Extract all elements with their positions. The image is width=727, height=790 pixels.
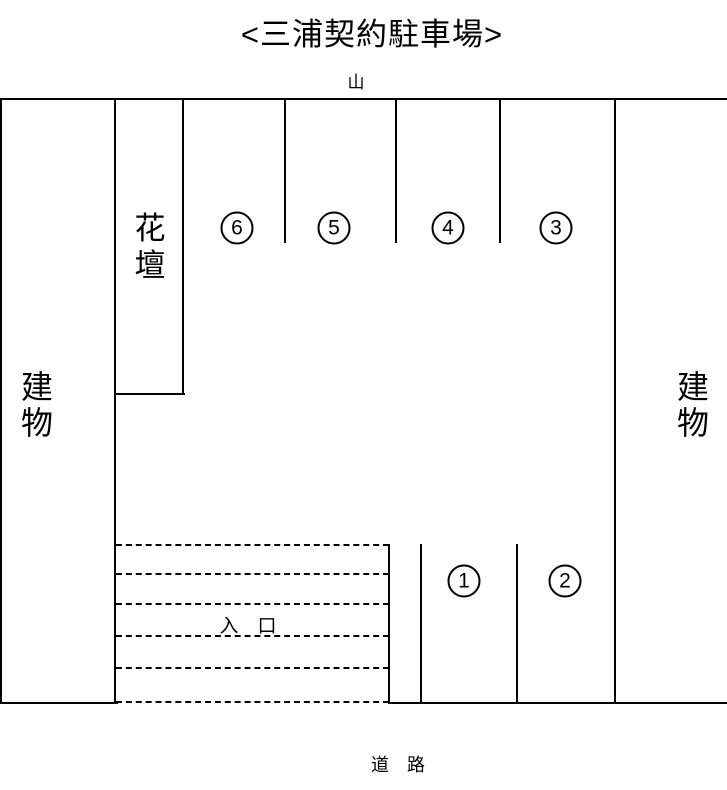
left-building-wall-line [0, 98, 2, 704]
divider-spot1-spot2 [516, 544, 518, 704]
spot-3-number: 3 [550, 218, 562, 239]
road-label: 道 路 [371, 751, 425, 777]
divider-spot5-spot4 [395, 98, 397, 243]
lot-left-wall-line [114, 98, 116, 704]
bottom-boundary-right-line [388, 702, 727, 704]
parking-spot-1: 1 [448, 565, 481, 598]
parking-spot-5: 5 [318, 212, 351, 245]
spot-6-number: 6 [231, 218, 243, 239]
entrance-right-line [388, 544, 390, 704]
spot1-left-line [420, 544, 422, 704]
entrance-dashed-line-5 [116, 667, 389, 669]
entrance-dashed-line-6 [116, 701, 389, 703]
top-boundary-line [0, 98, 727, 100]
entrance-dashed-line-1 [116, 544, 389, 546]
building-left-label: 建物 [20, 369, 54, 441]
divider-spot4-spot3 [499, 98, 501, 243]
entrance-dashed-line-2 [116, 573, 389, 575]
parking-spot-4: 4 [432, 212, 465, 245]
flowerbed-right-line [182, 98, 184, 395]
flowerbed-label: 花壇 [134, 210, 167, 284]
map-title: <三浦契約駐車場> [241, 9, 503, 54]
parking-spot-6: 6 [221, 212, 254, 245]
entrance-dashed-line-3 [116, 603, 389, 605]
spot-2-number: 2 [559, 571, 571, 592]
parking-lot-map: <三浦契約駐車場> 山 道 路 花壇 建物 建物 6 5 4 3 入 口 1 2 [0, 0, 727, 790]
parking-spot-2: 2 [549, 565, 582, 598]
flowerbed-bottom-line [114, 393, 185, 395]
spot-1-number: 1 [458, 571, 470, 592]
spot-4-number: 4 [442, 218, 454, 239]
spot-5-number: 5 [328, 218, 340, 239]
parking-spot-3: 3 [540, 212, 573, 245]
building-right-label: 建物 [676, 369, 710, 441]
lot-right-wall-line [614, 98, 616, 704]
entrance-label: 入 口 [219, 611, 276, 638]
divider-spot6-spot5 [284, 98, 286, 243]
bottom-boundary-left-line [0, 702, 118, 704]
mountain-label: 山 [348, 68, 365, 93]
